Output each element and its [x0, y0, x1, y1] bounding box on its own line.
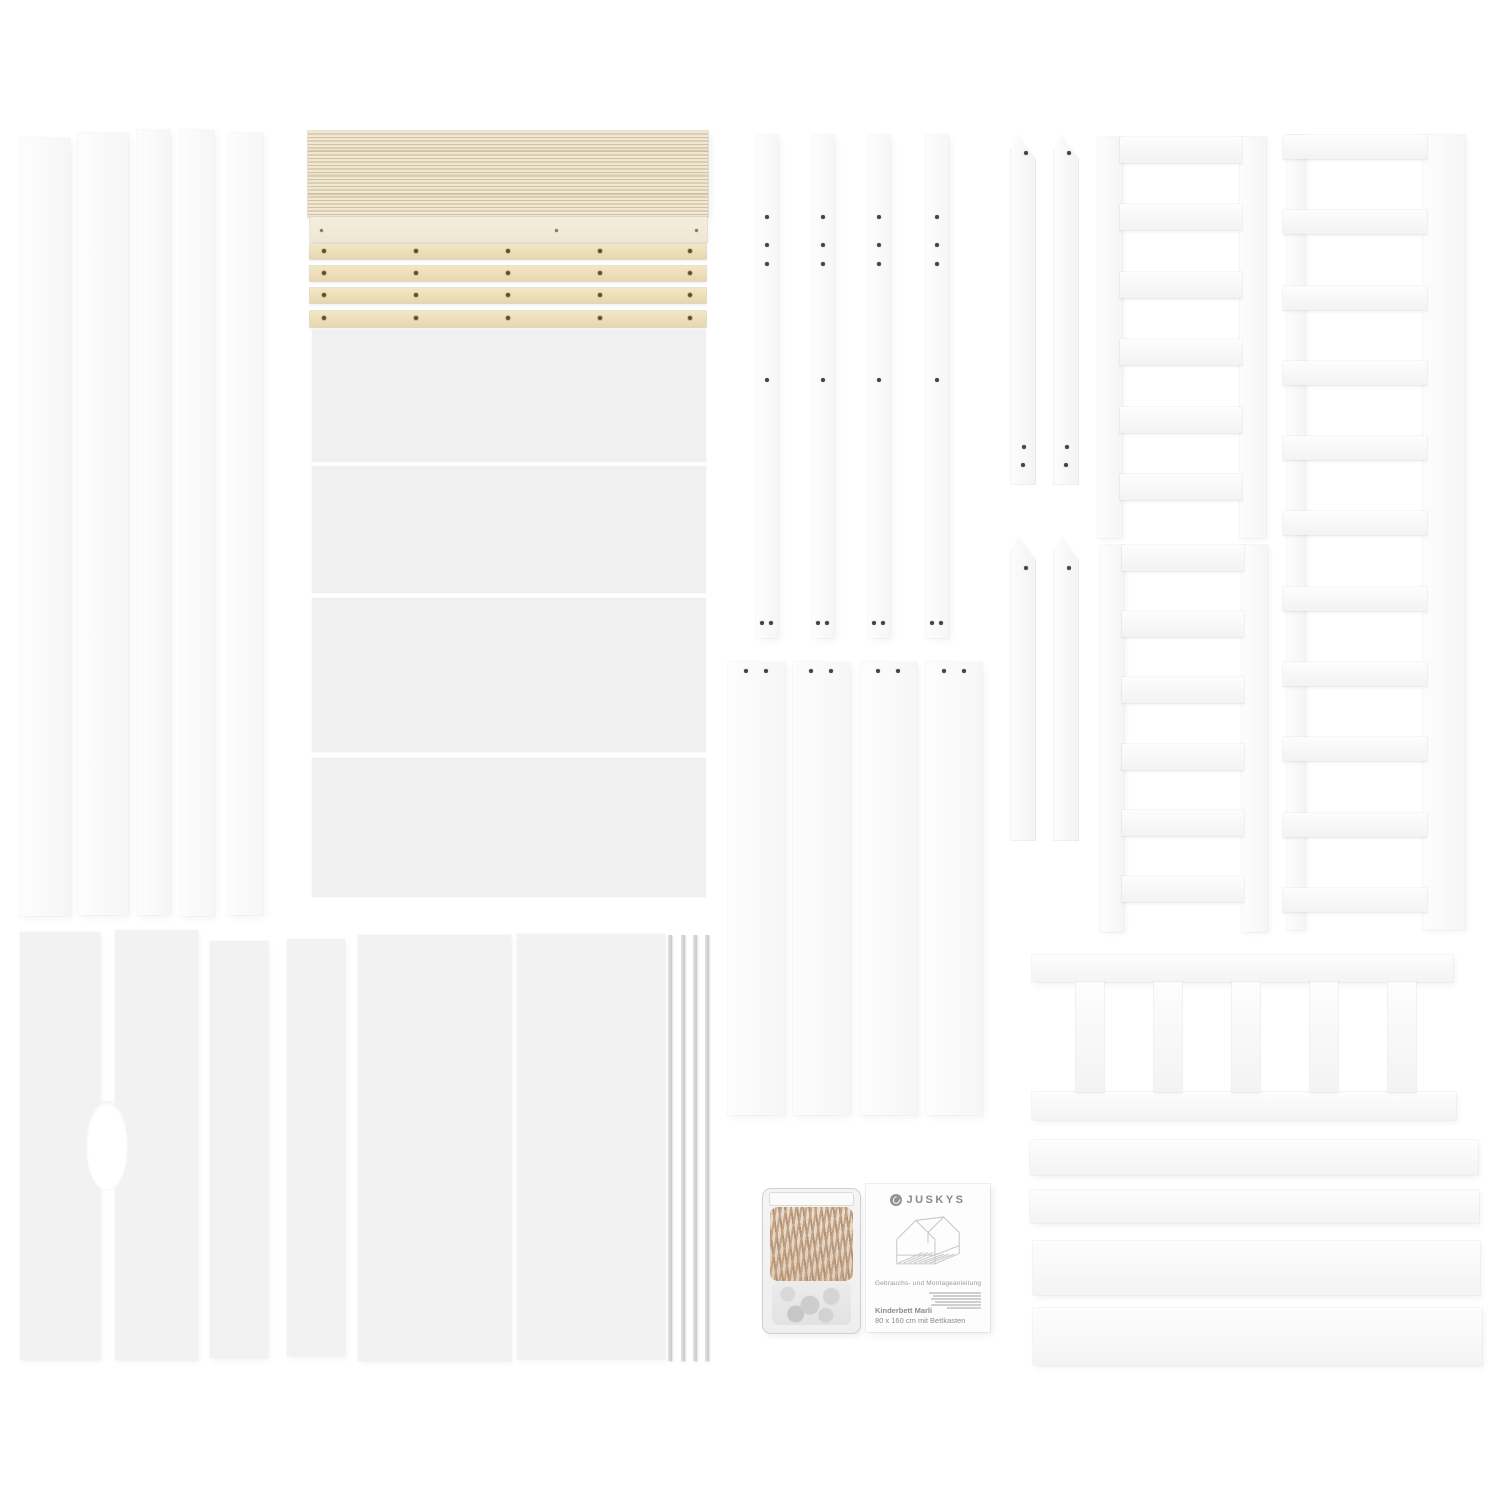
roof-post	[1053, 536, 1079, 841]
product-name: Kinderbett Marli	[875, 1306, 932, 1315]
article-number-lines	[929, 1292, 981, 1309]
roof-post	[1010, 536, 1036, 841]
tall-board	[78, 133, 128, 915]
ladder-panel	[1100, 545, 1268, 932]
instruction-manual: JUSKYS	[866, 1184, 990, 1332]
large-panel	[312, 466, 706, 593]
bed-post	[812, 135, 834, 638]
slat-rail	[310, 288, 706, 303]
tall-board	[20, 138, 70, 916]
ladder-panel-tall	[1283, 135, 1465, 930]
metal-rod	[681, 935, 685, 1361]
long-board	[1033, 1241, 1480, 1295]
tall-board	[180, 130, 214, 916]
hardware-bag	[762, 1188, 861, 1334]
guard-rail-slats	[1076, 982, 1416, 1092]
drawer-panel	[287, 939, 345, 1356]
product-size: 80 x 160 cm mit Bettkasten	[875, 1316, 965, 1325]
long-board	[1033, 1308, 1482, 1365]
bed-slat-stack	[308, 131, 708, 217]
metal-rod	[693, 935, 697, 1361]
slat-stack-grain	[308, 131, 708, 217]
roof-post	[1010, 135, 1036, 485]
juskys-logo-icon	[890, 1194, 902, 1206]
slat-rail	[310, 244, 706, 259]
screws	[770, 1207, 853, 1281]
bed-post	[756, 135, 778, 638]
bottom-panel	[517, 934, 665, 1359]
bed-post	[926, 135, 949, 638]
metal-rod	[705, 935, 709, 1361]
large-panel	[312, 598, 706, 752]
drawer-board	[860, 662, 917, 1115]
large-panel	[312, 330, 706, 462]
roof-post	[1053, 135, 1079, 485]
metal-fittings	[772, 1281, 851, 1325]
long-board	[1030, 1190, 1479, 1223]
large-panel	[312, 758, 706, 897]
long-board	[1030, 1140, 1478, 1175]
house-bed-line-drawing	[883, 1210, 973, 1276]
drawer-board	[728, 662, 785, 1115]
guard-rail-top	[1032, 955, 1453, 982]
tall-board	[228, 133, 263, 915]
bed-post	[868, 135, 890, 638]
tall-board	[137, 130, 170, 915]
brand-name: JUSKYS	[906, 1194, 965, 1206]
bed-slat-stack-side	[310, 217, 707, 242]
handle-cutout	[86, 1101, 128, 1191]
brand-logo: JUSKYS	[866, 1194, 990, 1206]
metal-rod	[668, 935, 672, 1361]
slat-rail	[310, 311, 706, 327]
guard-rail-bottom	[1032, 1092, 1456, 1120]
product-photo-kinderbett-parts: JUSKYS	[0, 0, 1500, 1500]
drawer-board	[793, 662, 850, 1115]
bottom-panel	[358, 935, 511, 1361]
manual-title: Gebrauchs- und Montageanleitung	[866, 1280, 990, 1287]
slat-rail	[310, 266, 706, 281]
drawer-board	[926, 662, 982, 1115]
bag-flap	[769, 1192, 854, 1206]
drawer-panel	[210, 941, 268, 1358]
guard-rail	[1032, 955, 1456, 1125]
ladder-panel	[1098, 137, 1266, 538]
